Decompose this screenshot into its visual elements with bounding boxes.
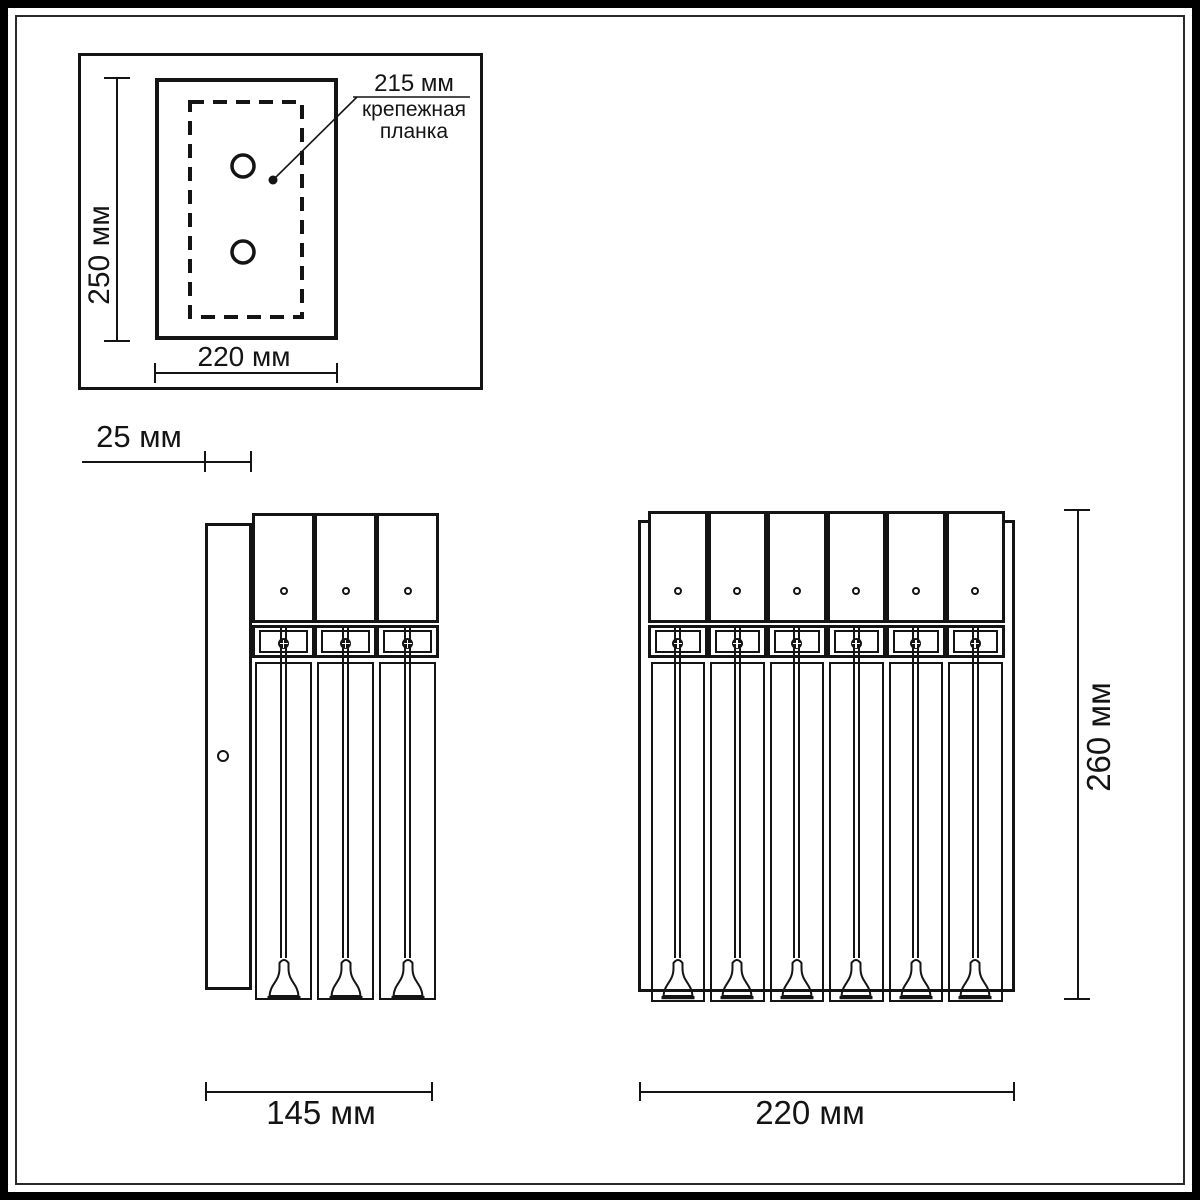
dim-tick	[431, 1082, 433, 1101]
glass-rod	[972, 627, 979, 958]
screw	[402, 638, 413, 649]
dim-tick	[1013, 1082, 1015, 1101]
top-box-hole-dot	[793, 587, 801, 595]
dim-tick	[104, 340, 130, 342]
glass-unit	[648, 511, 708, 1002]
glass-rod	[674, 627, 681, 958]
callout-name-line2: планка	[362, 121, 466, 143]
rod-flare	[839, 958, 873, 1000]
mounting-hole-bottom	[232, 241, 254, 263]
rod-flare	[958, 958, 992, 1000]
callout-value-label: 215 мм	[374, 70, 454, 98]
rod-flare	[391, 958, 425, 1000]
unit-top-box	[767, 511, 827, 623]
rod-flare	[661, 958, 695, 1000]
front-view-width-dim-line	[640, 1091, 1015, 1093]
dim-tick	[336, 363, 338, 383]
glass-unit	[314, 513, 377, 1000]
rod-flare-shape	[899, 958, 933, 1000]
rod-flare-shape	[267, 958, 301, 1000]
top-box-hole-dot	[404, 587, 412, 595]
glass-unit	[376, 513, 439, 1000]
callout-name-label: крепежная планка	[362, 99, 466, 143]
screw	[851, 638, 862, 649]
dimension-drawing-page: 250 мм 220 мм 215 мм крепежная планка 25…	[0, 0, 1200, 1200]
top-box-hole-dot	[733, 587, 741, 595]
rod-flare	[720, 958, 754, 1000]
glass-unit	[767, 511, 827, 1002]
dim-tick	[1064, 998, 1090, 1000]
side-view-backplate-hole	[217, 750, 229, 762]
rod-flare-shape	[661, 958, 695, 1000]
callout-name-line1: крепежная	[362, 99, 466, 121]
dim-tick	[1064, 509, 1090, 511]
rod-flare-shape	[329, 958, 363, 1000]
rod-flare	[329, 958, 363, 1000]
unit-top-box	[708, 511, 768, 623]
unit-top-box	[314, 513, 377, 623]
glass-rod	[853, 627, 860, 958]
side-view-width-dim-line	[206, 1091, 433, 1093]
glass-rod	[912, 627, 919, 958]
top-box-hole-dot	[912, 587, 920, 595]
plate-depth-label: 25 мм	[96, 419, 182, 455]
rod-flare	[780, 958, 814, 1000]
glass-rod	[404, 627, 411, 958]
unit-top-box	[376, 513, 439, 623]
glass-unit	[252, 513, 315, 1000]
top-box-hole-dot	[342, 587, 350, 595]
dim-tick	[104, 77, 130, 79]
mounting-plate-dashed-outline	[190, 102, 302, 317]
plate-depth-dim-line	[82, 461, 252, 463]
unit-top-box	[946, 511, 1006, 623]
front-view-backplate-bottom-edge	[638, 989, 1015, 992]
rod-flare	[899, 958, 933, 1000]
rod-flare	[267, 958, 301, 1000]
glass-rod	[280, 627, 287, 958]
screw	[970, 638, 981, 649]
rod-flare-shape	[780, 958, 814, 1000]
glass-unit	[946, 511, 1006, 1002]
side-view-width-label: 145 мм	[266, 1094, 376, 1132]
dim-tick	[204, 451, 206, 472]
front-view-width-label: 220 мм	[755, 1094, 865, 1132]
mounting-hole-top	[232, 155, 254, 177]
top-box-hole-dot	[674, 587, 682, 595]
screw	[340, 638, 351, 649]
back-view-width-label: 220 мм	[198, 341, 291, 373]
dim-tick	[205, 1082, 207, 1101]
unit-top-box	[252, 513, 315, 623]
dim-tick	[154, 363, 156, 383]
dim-tick	[639, 1082, 641, 1101]
dim-tick	[250, 451, 252, 472]
unit-top-box	[648, 511, 708, 623]
callout-leader-line	[273, 97, 357, 180]
rod-flare-shape	[839, 958, 873, 1000]
screw	[278, 638, 289, 649]
rod-flare-shape	[720, 958, 754, 1000]
screw	[732, 638, 743, 649]
glass-rod	[734, 627, 741, 958]
unit-top-box	[886, 511, 946, 623]
glass-unit	[708, 511, 768, 1002]
glass-unit	[886, 511, 946, 1002]
top-box-hole-dot	[280, 587, 288, 595]
unit-top-box	[827, 511, 887, 623]
rod-flare-shape	[391, 958, 425, 1000]
rod-flare-shape	[958, 958, 992, 1000]
top-box-hole-dot	[852, 587, 860, 595]
glass-rod	[793, 627, 800, 958]
front-view-height-dim-line	[1077, 510, 1079, 1000]
top-box-hole-dot	[971, 587, 979, 595]
front-view-height-label: 260 мм	[1080, 682, 1118, 792]
back-view-height-label: 250 мм	[83, 205, 117, 305]
glass-unit	[827, 511, 887, 1002]
glass-rod	[342, 627, 349, 958]
